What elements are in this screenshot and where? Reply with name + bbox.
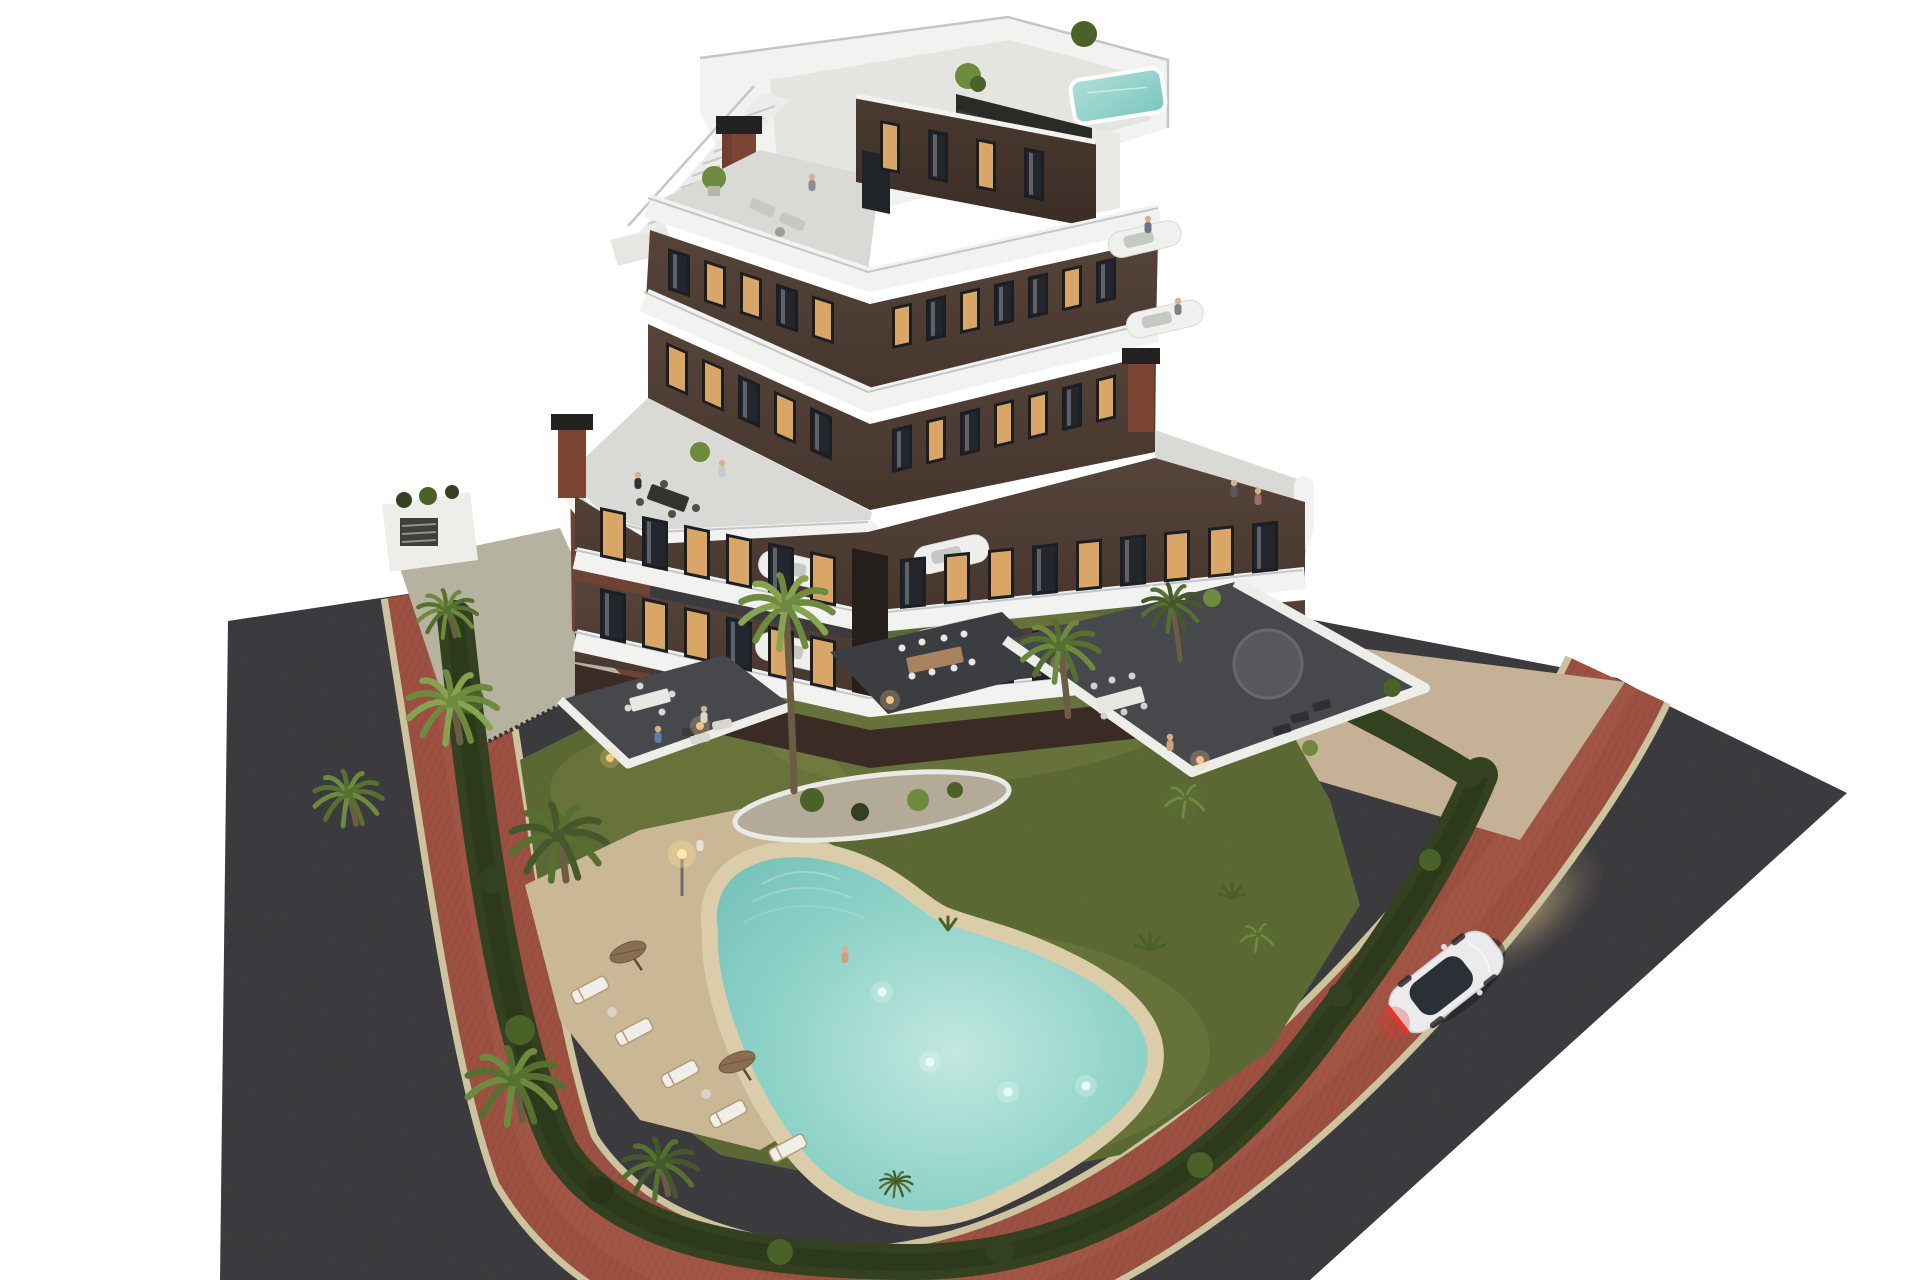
window xyxy=(1208,525,1234,578)
window xyxy=(704,260,726,309)
person xyxy=(1145,216,1152,233)
side-table xyxy=(607,1007,617,1017)
window xyxy=(1164,530,1190,583)
person xyxy=(635,472,642,489)
window xyxy=(994,399,1014,448)
side-table xyxy=(701,1089,711,1099)
window xyxy=(1032,543,1058,596)
person xyxy=(1175,298,1182,315)
window xyxy=(892,303,912,349)
window xyxy=(900,556,926,609)
person xyxy=(697,834,704,851)
window xyxy=(1028,272,1048,318)
window xyxy=(600,588,626,644)
window xyxy=(1076,539,1102,592)
window xyxy=(1096,257,1116,303)
person xyxy=(701,706,708,723)
window xyxy=(928,129,948,183)
person xyxy=(1255,488,1262,505)
window xyxy=(926,416,946,465)
window xyxy=(776,283,798,332)
window xyxy=(812,295,834,344)
window xyxy=(1062,265,1082,311)
window xyxy=(1024,147,1044,201)
window xyxy=(1120,534,1146,587)
person xyxy=(1231,480,1238,497)
window xyxy=(642,516,668,572)
window xyxy=(926,295,946,341)
person xyxy=(809,174,816,191)
window xyxy=(1062,382,1082,431)
person xyxy=(719,460,726,477)
window xyxy=(994,280,1014,326)
person xyxy=(655,726,662,743)
architectural-render-canvas xyxy=(0,0,1920,1280)
window xyxy=(1096,374,1116,423)
window xyxy=(726,533,752,589)
window xyxy=(740,272,762,321)
window xyxy=(668,248,690,297)
window xyxy=(684,525,710,581)
window xyxy=(684,607,710,663)
round-rug xyxy=(1234,630,1302,698)
window xyxy=(1028,391,1048,440)
window xyxy=(976,138,996,192)
scene-svg xyxy=(0,0,1920,1280)
window xyxy=(642,597,668,653)
window xyxy=(1252,521,1278,574)
person xyxy=(1167,734,1174,751)
window xyxy=(810,635,836,691)
window xyxy=(810,551,836,607)
window xyxy=(960,287,980,333)
window xyxy=(944,552,970,605)
window xyxy=(988,547,1014,600)
window xyxy=(892,424,912,473)
window xyxy=(600,507,626,563)
person xyxy=(842,946,849,963)
window xyxy=(960,407,980,456)
window xyxy=(880,120,900,174)
